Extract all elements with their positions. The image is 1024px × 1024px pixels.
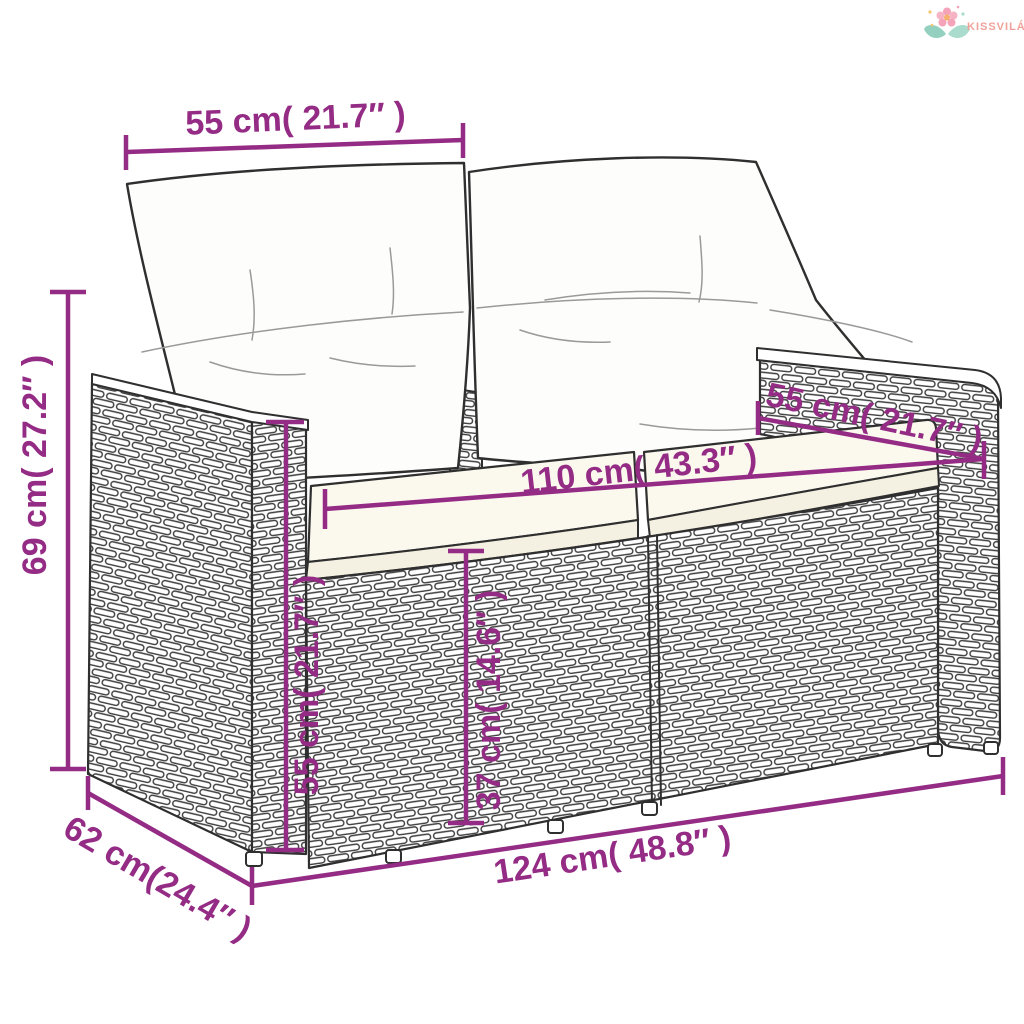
- brand-name: KISSVILÁG: [967, 20, 1024, 33]
- sofa-foot: [928, 744, 942, 756]
- sofa-foot: [642, 802, 657, 815]
- left-armrest-side-panel: [88, 382, 252, 852]
- dimension-total-height: [50, 292, 86, 769]
- flower-icon: [924, 6, 970, 38]
- label-seat-height: 37 cm( 14.6″ ): [470, 590, 508, 810]
- sofa-foot: [386, 850, 401, 863]
- sofa-foot: [246, 852, 262, 866]
- sofa-dimension-diagram: 55 cm( 21.7″ ) 69 cm( 27.2″ ) 110 cm( 43…: [0, 0, 1024, 1024]
- brand-logo: KISSVILÁG: [924, 6, 1024, 38]
- left-armrest: [88, 374, 308, 854]
- label-armrest-height: 55 cm( 21.7″ ): [288, 575, 326, 795]
- label-back-cushion-width: 55 cm( 21.7″ ): [185, 95, 407, 143]
- label-total-width: 124 cm( 48.8″ ): [491, 819, 733, 892]
- sofa-foot: [984, 742, 998, 754]
- diagram-canvas: 55 cm( 21.7″ ) 69 cm( 27.2″ ) 110 cm( 43…: [0, 0, 1024, 1024]
- label-total-height: 69 cm( 27.2″ ): [16, 355, 54, 575]
- sofa-drawing: [88, 157, 1001, 868]
- sofa-foot: [548, 820, 563, 833]
